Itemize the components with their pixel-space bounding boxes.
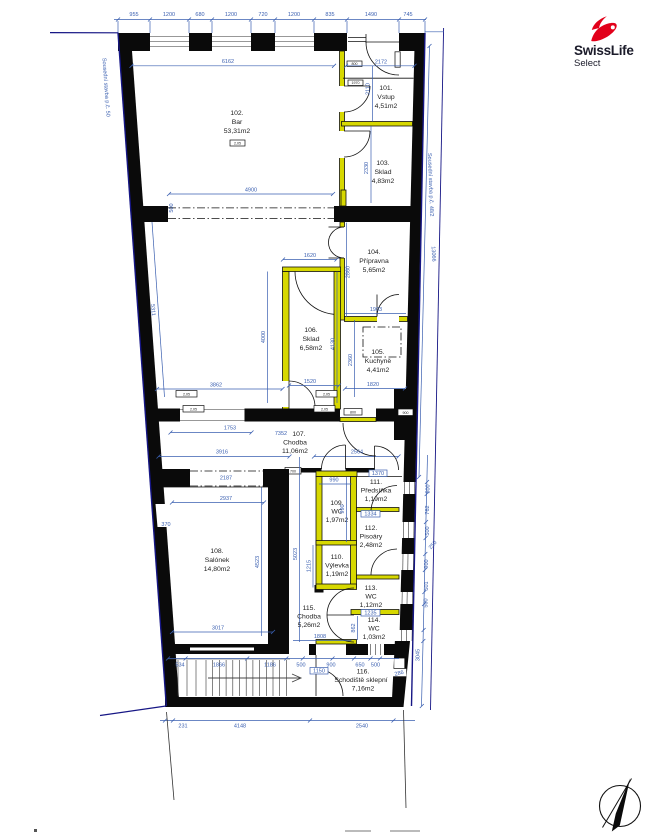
svg-text:112.: 112. (365, 525, 378, 532)
svg-text:7352: 7352 (275, 431, 287, 437)
svg-text:Sklad: Sklad (374, 169, 391, 176)
svg-text:900: 900 (424, 559, 430, 568)
svg-text:700: 700 (290, 470, 296, 474)
svg-text:1808: 1808 (314, 634, 326, 640)
svg-text:105.: 105. (371, 349, 384, 356)
svg-text:2540: 2540 (356, 724, 368, 730)
svg-text:990: 990 (340, 504, 346, 513)
svg-text:1,97m2: 1,97m2 (326, 517, 349, 524)
svg-text:Salónek: Salónek (205, 557, 230, 564)
svg-text:110.: 110. (331, 554, 344, 561)
svg-text:800: 800 (350, 411, 356, 415)
svg-text:115.: 115. (303, 605, 316, 612)
svg-text:1235: 1235 (364, 611, 376, 617)
svg-text:862: 862 (351, 623, 357, 632)
svg-text:Chodba: Chodba (297, 614, 321, 621)
svg-text:2564: 2564 (351, 450, 363, 456)
svg-text:500: 500 (424, 598, 430, 607)
svg-text:Bar: Bar (232, 119, 243, 126)
svg-text:SwissLife: SwissLife (574, 43, 634, 58)
svg-text:106.: 106. (304, 327, 317, 334)
svg-text:534: 534 (175, 663, 184, 669)
svg-text:900: 900 (403, 411, 409, 415)
svg-text:1,19m2: 1,19m2 (326, 571, 349, 578)
svg-text:1,03m2: 1,03m2 (363, 634, 386, 641)
svg-text:1620: 1620 (304, 253, 316, 259)
svg-text:101.: 101. (379, 85, 392, 92)
svg-text:108.: 108. (210, 548, 223, 555)
svg-text:3916: 3916 (216, 450, 228, 456)
svg-text:102.: 102. (230, 110, 243, 117)
svg-text:500: 500 (426, 484, 432, 493)
svg-text:2110: 2110 (366, 83, 372, 95)
svg-text:14,80m2: 14,80m2 (204, 566, 231, 573)
svg-text:116.: 116. (357, 669, 370, 676)
svg-text:955: 955 (129, 12, 138, 18)
svg-text:2330: 2330 (364, 162, 370, 174)
svg-text:1200: 1200 (225, 12, 237, 18)
svg-text:Chodba: Chodba (283, 440, 307, 447)
svg-text:6,58m2: 6,58m2 (300, 345, 323, 352)
svg-text:107.: 107. (292, 431, 305, 438)
svg-text:1150: 1150 (313, 669, 325, 675)
svg-text:1370: 1370 (372, 471, 384, 477)
svg-text:1753: 1753 (224, 426, 236, 432)
svg-text:4523: 4523 (255, 556, 261, 568)
svg-text:4,83m2: 4,83m2 (372, 178, 395, 185)
svg-text:4148: 4148 (234, 724, 246, 730)
svg-text:1820: 1820 (367, 382, 379, 388)
svg-text:2,05: 2,05 (190, 408, 197, 412)
svg-text:Předsíňka: Předsíňka (361, 488, 392, 495)
svg-text:Schodiště sklepní: Schodiště sklepní (334, 677, 387, 684)
svg-text:Vstup: Vstup (377, 94, 395, 101)
svg-text:500: 500 (371, 663, 380, 669)
svg-text:762: 762 (425, 505, 431, 514)
svg-text:Select: Select (574, 58, 601, 69)
svg-text:5,65m2: 5,65m2 (363, 267, 386, 274)
svg-text:4900: 4900 (245, 188, 257, 194)
svg-text:Výlevka: Výlevka (325, 563, 349, 570)
svg-text:500: 500 (425, 526, 431, 535)
svg-text:2,05: 2,05 (323, 393, 330, 397)
svg-text:1215: 1215 (307, 560, 313, 572)
svg-text:500: 500 (296, 663, 305, 669)
svg-text:3862: 3862 (210, 383, 222, 389)
svg-text:1866: 1866 (213, 663, 225, 669)
svg-text:6162: 6162 (222, 59, 234, 65)
svg-text:1200: 1200 (163, 12, 175, 18)
svg-text:Kuchyně: Kuchyně (365, 358, 392, 365)
svg-text:1,19m2: 1,19m2 (365, 496, 388, 503)
svg-text:720: 720 (258, 12, 267, 18)
svg-text:680: 680 (195, 12, 204, 18)
svg-text:3045: 3045 (416, 649, 422, 661)
svg-text:4130: 4130 (331, 338, 337, 350)
svg-text:990: 990 (329, 478, 338, 484)
svg-text:53,31m2: 53,31m2 (224, 128, 251, 135)
svg-text:1490: 1490 (365, 12, 377, 18)
svg-text:2360: 2360 (348, 354, 354, 366)
svg-text:1200: 1200 (288, 12, 300, 18)
svg-text:13066: 13066 (430, 246, 437, 262)
svg-text:2,48m2: 2,48m2 (360, 542, 383, 549)
svg-text:7,16m2: 7,16m2 (352, 686, 375, 693)
svg-text:114.: 114. (368, 617, 381, 624)
svg-text:1520: 1520 (304, 379, 316, 385)
svg-text:2,05: 2,05 (321, 408, 328, 412)
svg-text:5023: 5023 (293, 548, 299, 560)
svg-text:Sklad: Sklad (302, 336, 319, 343)
svg-text:500: 500 (169, 203, 175, 212)
svg-text:5311: 5311 (149, 304, 156, 316)
svg-text:3017: 3017 (212, 626, 224, 632)
svg-text:104.: 104. (367, 249, 380, 256)
svg-text:5,26m2: 5,26m2 (298, 622, 321, 629)
svg-text:113.: 113. (365, 585, 378, 592)
svg-text:745: 745 (403, 12, 412, 18)
svg-text:4000: 4000 (261, 331, 267, 343)
svg-text:1903: 1903 (370, 307, 382, 313)
svg-text:1334: 1334 (364, 512, 376, 518)
svg-text:WC: WC (368, 626, 379, 633)
svg-text:231: 231 (178, 724, 187, 730)
svg-text:1970: 1970 (352, 81, 360, 85)
svg-text:4,41m2: 4,41m2 (367, 367, 390, 374)
svg-text:2172: 2172 (375, 60, 387, 66)
svg-text:835: 835 (325, 12, 334, 18)
svg-text:2860: 2860 (346, 266, 352, 278)
svg-text:2937: 2937 (220, 496, 232, 502)
svg-text:Přípravna: Přípravna (359, 258, 389, 265)
svg-text:103.: 103. (376, 160, 389, 167)
svg-text:2,05: 2,05 (234, 142, 241, 146)
svg-text:2,05: 2,05 (183, 393, 190, 397)
svg-text:4,51m2: 4,51m2 (375, 103, 398, 110)
svg-text:1,12m2: 1,12m2 (360, 602, 383, 609)
svg-text:501: 501 (424, 581, 430, 590)
svg-text:11,06m2: 11,06m2 (282, 448, 308, 455)
svg-text:1186: 1186 (264, 663, 276, 669)
svg-text:WC: WC (365, 594, 376, 601)
svg-text:370: 370 (161, 522, 170, 528)
svg-text:2187: 2187 (220, 476, 232, 482)
svg-text:111.: 111. (370, 479, 382, 486)
svg-text:Pisoáry: Pisoáry (360, 534, 383, 541)
